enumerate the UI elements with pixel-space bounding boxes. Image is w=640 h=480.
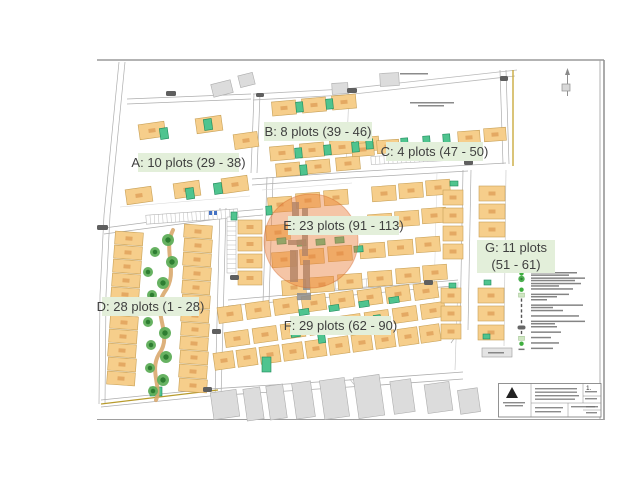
- titleblock-sheet-number: 1.: [586, 385, 591, 392]
- zone-label-e: E: 23 plots (91 - 113): [288, 216, 399, 235]
- legend-layer: [518, 271, 586, 350]
- zone-label-d: D: 28 plots (1 - 28): [102, 297, 199, 316]
- focus-circle-layer: [264, 194, 358, 288]
- zone-label-c: C: 4 plots (47 - 50): [386, 142, 483, 161]
- zone-label-f: F: 29 plots (62 - 90): [290, 316, 391, 335]
- zone-label-g: G: 11 plots (51 - 61): [477, 240, 555, 273]
- screenshot-canvas: A: 10 plots (29 - 38) B: 8 plots (39 - 4…: [0, 0, 640, 480]
- zone-label-a: A: 10 plots (29 - 38): [138, 153, 239, 172]
- north-arrow-layer: [562, 68, 570, 96]
- zone-label-b: B: 8 plots (39 - 46): [264, 122, 372, 141]
